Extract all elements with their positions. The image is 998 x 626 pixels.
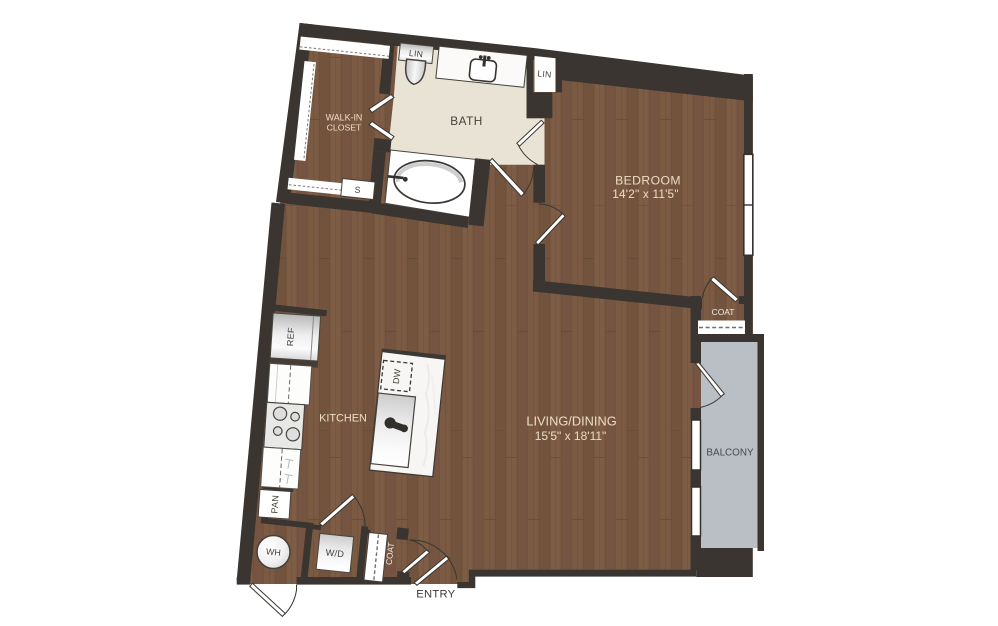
svg-text:KITCHEN: KITCHEN xyxy=(319,412,367,424)
svg-text:DW: DW xyxy=(391,368,403,385)
svg-text:15'5" x 18'11": 15'5" x 18'11" xyxy=(535,429,607,443)
svg-text:BATH: BATH xyxy=(450,114,483,128)
svg-text:LIN: LIN xyxy=(537,68,552,79)
svg-text:14'2" x 11'5": 14'2" x 11'5" xyxy=(612,187,678,201)
svg-text:BALCONY: BALCONY xyxy=(706,448,754,459)
svg-text:REF: REF xyxy=(285,327,296,347)
svg-text:S: S xyxy=(354,185,361,196)
svg-text:ENTRY: ENTRY xyxy=(416,589,455,601)
svg-text:CLOSET: CLOSET xyxy=(327,122,362,132)
svg-text:LIVING/DINING: LIVING/DINING xyxy=(526,414,616,429)
svg-text:COAT: COAT xyxy=(712,307,735,317)
svg-text:BEDROOM: BEDROOM xyxy=(615,173,681,187)
svg-text:PAN: PAN xyxy=(269,495,280,514)
svg-text:WH: WH xyxy=(265,546,281,558)
svg-text:W/D: W/D xyxy=(325,547,345,559)
svg-text:LIN: LIN xyxy=(408,48,423,59)
svg-text:WALK-IN: WALK-IN xyxy=(326,112,363,122)
